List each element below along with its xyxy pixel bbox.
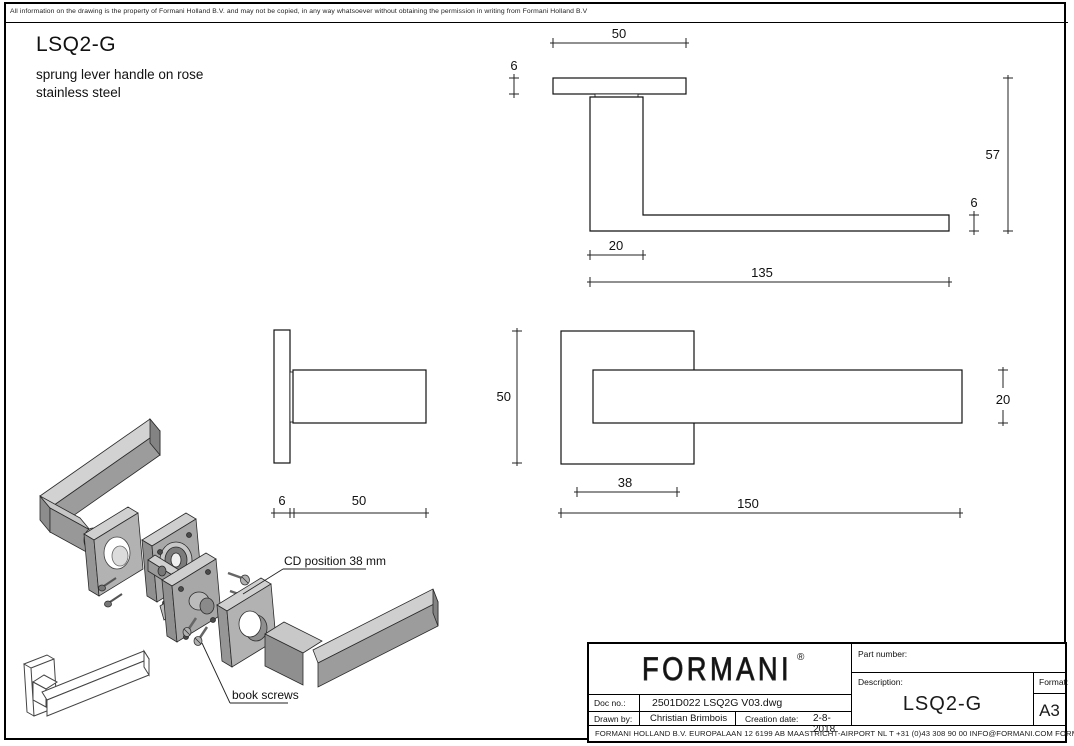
company-footer: FORMANI HOLLAND B.V. EUROPALAAN 12 6199 … xyxy=(589,726,1065,741)
exploded-rose-left xyxy=(84,507,143,596)
drawn-by-row: Drawn by: Christian Brimbois Creation da… xyxy=(589,712,852,726)
creation-date-value: 2-8-2018 xyxy=(803,712,851,725)
format-label-cell: Format: xyxy=(1034,673,1065,694)
doc-no-row: Doc no.: 2501D022 LSQ2G V03.dwg xyxy=(589,695,852,712)
dim-front-total-length: 150 xyxy=(737,496,759,511)
drawn-by-value: Christian Brimbois xyxy=(640,712,736,725)
front-view xyxy=(561,331,962,464)
formani-logo-text: FORMANI xyxy=(642,651,792,687)
drawing-canvas: 50 6 57 6 20 135 6 50 xyxy=(0,0,1074,746)
drawn-by-label: Drawn by: xyxy=(589,712,640,725)
side-view-dimensions xyxy=(509,38,1013,287)
book-screws-label: book screws xyxy=(232,688,299,702)
cd-position-label: CD position 38 mm xyxy=(284,554,386,568)
dim-side-rose-width: 50 xyxy=(612,26,626,41)
doc-no-value: 2501D022 LSQ2G V03.dwg xyxy=(640,695,851,711)
part-number-cell: Part number: xyxy=(852,644,1065,673)
dim-side-rose-thickness: 6 xyxy=(510,58,517,73)
formani-logo: FORMANI ® xyxy=(589,644,847,692)
dim-front-rose-height: 50 xyxy=(497,389,511,404)
format-value-cell: A3 xyxy=(1034,694,1065,726)
drawing-sheet: All information on the drawing is the pr… xyxy=(0,0,1074,746)
exploded-handle-right xyxy=(265,589,438,687)
format-value: A3 xyxy=(1039,701,1060,720)
dim-profile-neck-length: 50 xyxy=(352,493,366,508)
exploded-outline-handle xyxy=(24,651,149,716)
format-label: Format: xyxy=(1039,677,1068,687)
title-block: FORMANI ® Part number: Description: LSQ2… xyxy=(587,642,1067,743)
dim-front-cd-position: 38 xyxy=(618,475,632,490)
dim-side-total-height: 57 xyxy=(986,147,1000,162)
side-view xyxy=(553,78,949,231)
profile-view-dimensions xyxy=(271,508,429,518)
doc-no-label: Doc no.: xyxy=(589,695,640,711)
dim-side-neck-depth: 20 xyxy=(609,238,623,253)
part-number-label: Part number: xyxy=(858,649,907,659)
description-cell: Description: LSQ2-G xyxy=(852,673,1034,726)
creation-date-label: Creation date: xyxy=(736,712,803,725)
dim-side-lever-thickness: 6 xyxy=(970,195,977,210)
logo-cell: FORMANI ® xyxy=(589,644,852,695)
profile-view xyxy=(274,330,426,463)
description-value: LSQ2-G xyxy=(858,693,1027,716)
dim-front-lever-height: 20 xyxy=(996,392,1010,407)
dim-profile-rose-thickness: 6 xyxy=(278,493,285,508)
dim-side-lever-length: 135 xyxy=(751,265,773,280)
description-label: Description: xyxy=(858,677,1027,687)
registered-mark: ® xyxy=(797,652,805,663)
